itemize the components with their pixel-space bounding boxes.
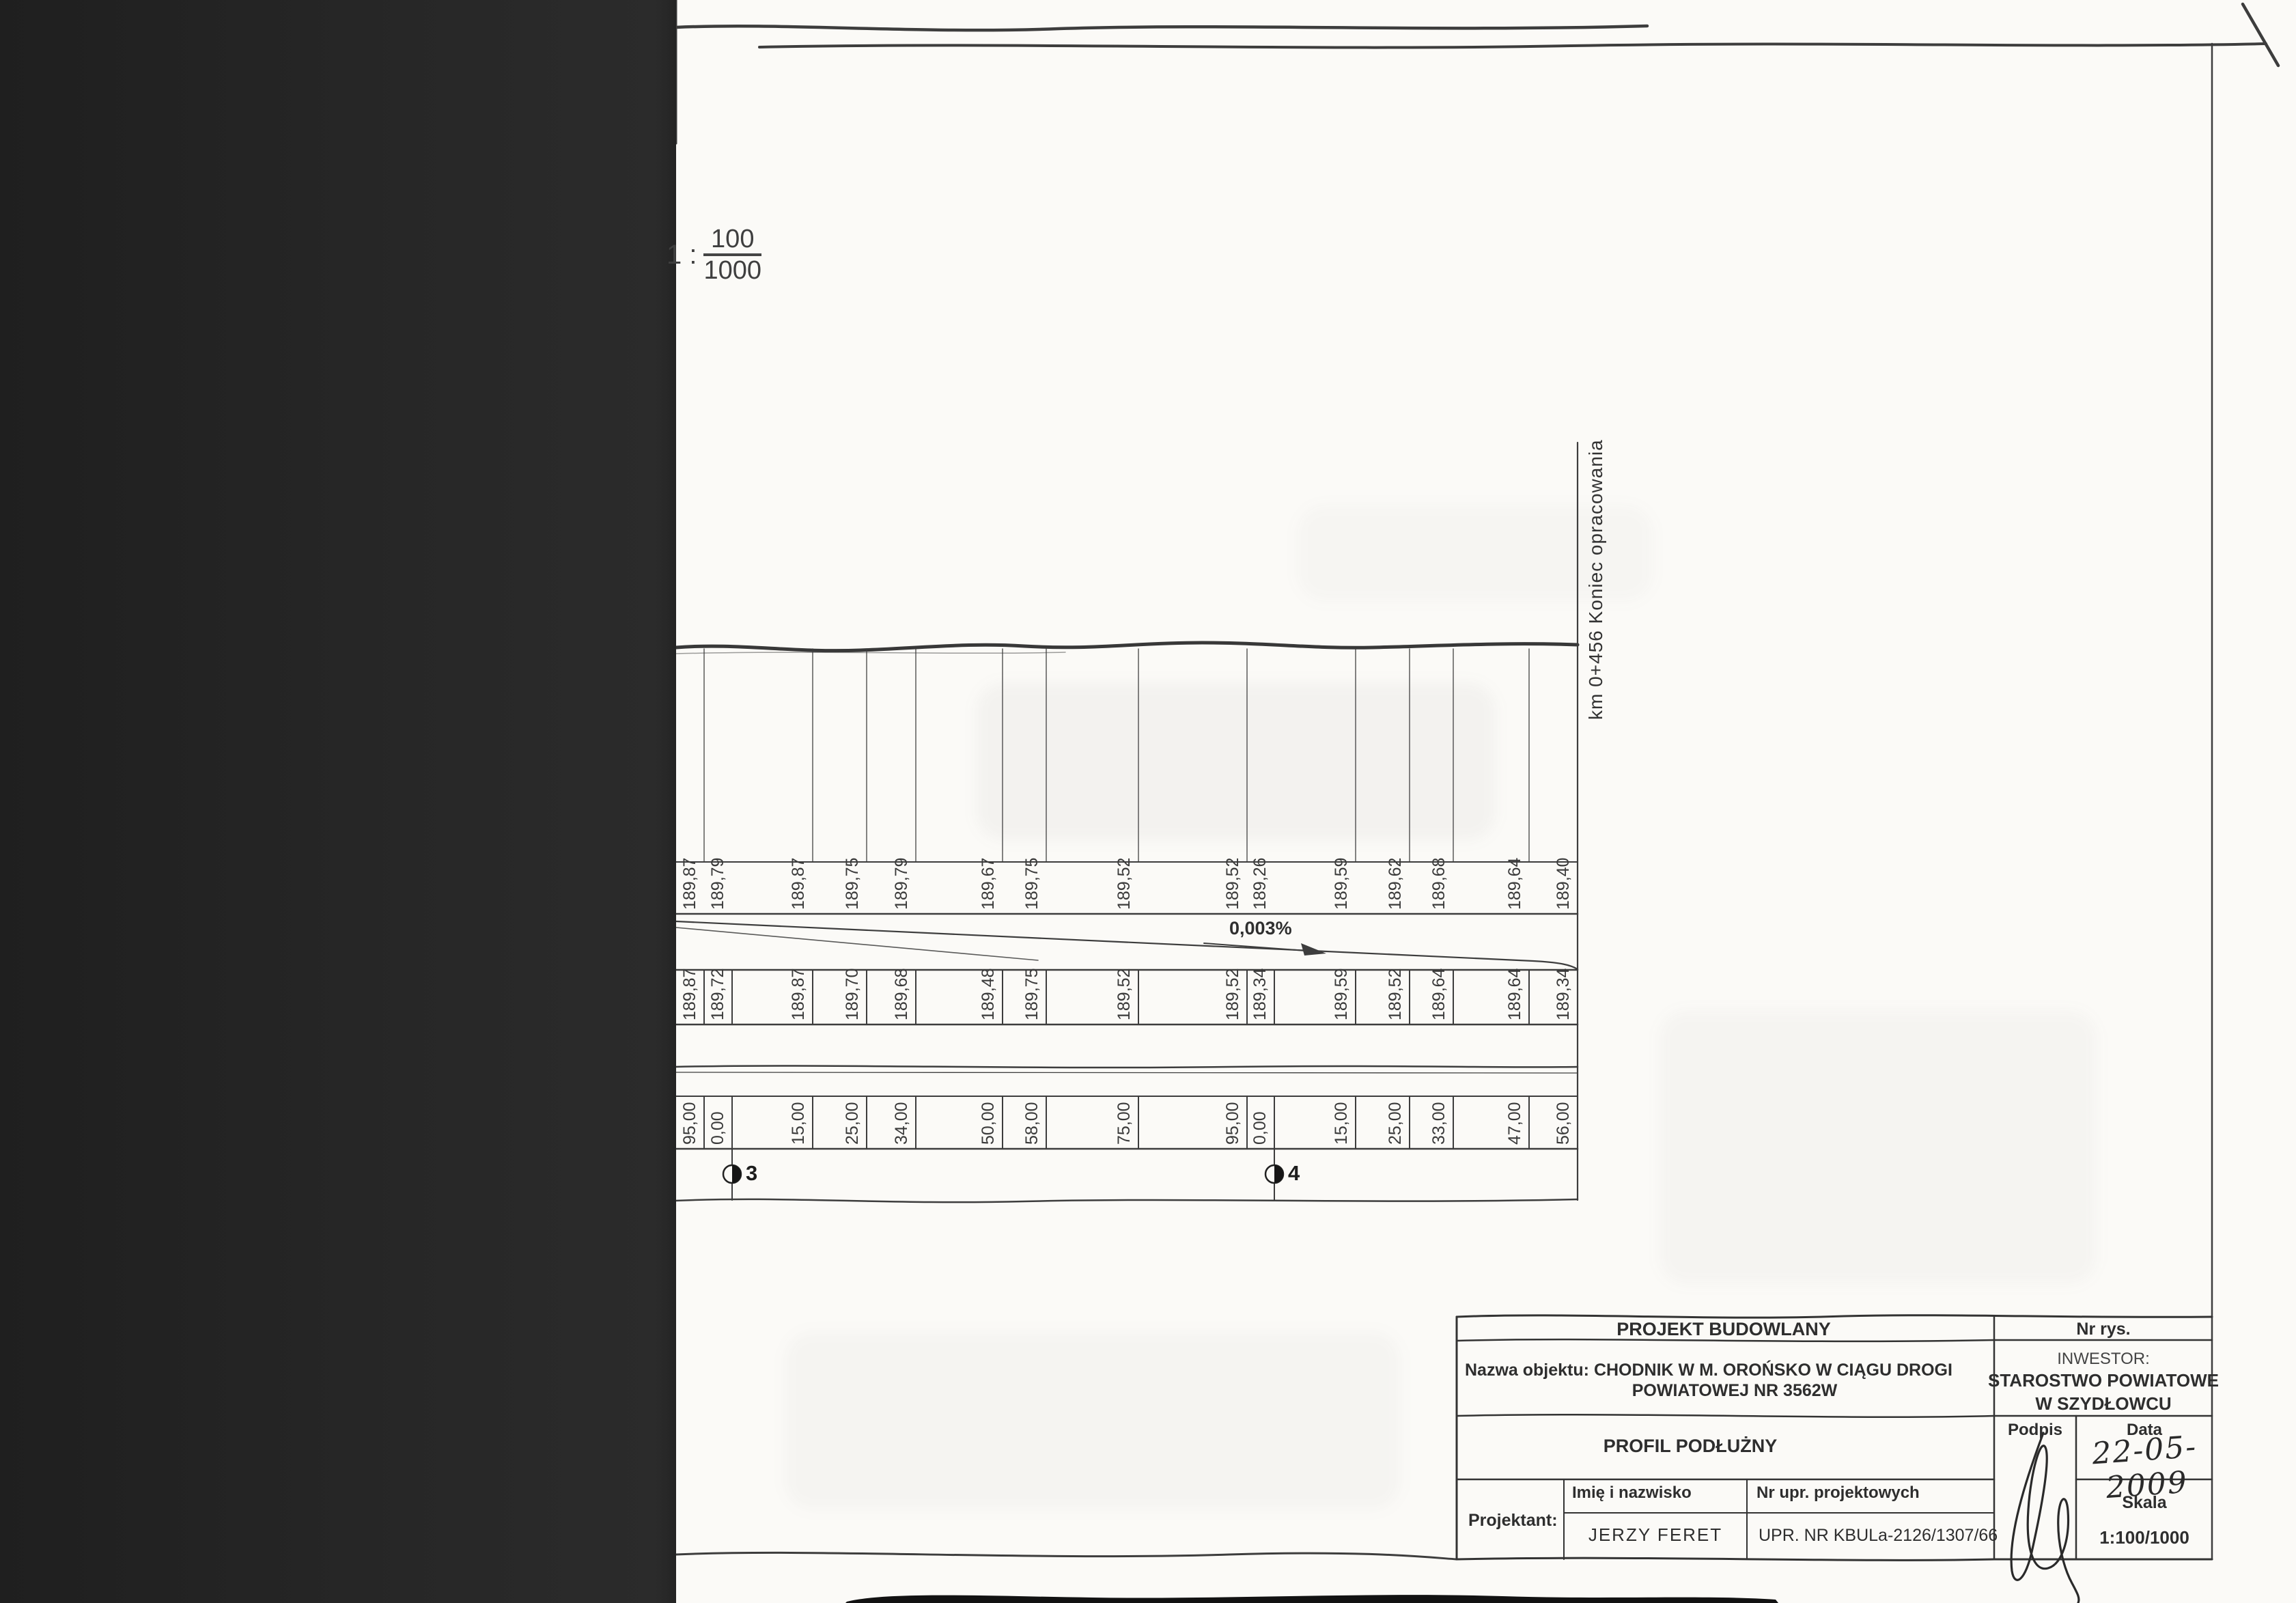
scale-denominator: 1000 xyxy=(703,256,761,284)
elevation-bottom-value: 189,52 xyxy=(1385,968,1405,1020)
distance-value: 58,00 xyxy=(1022,1102,1042,1145)
license-column-header: Nr upr. projektowych xyxy=(1756,1483,1920,1503)
designer-role-label: Projektant: xyxy=(1468,1511,1558,1531)
hectometer-marker-icon xyxy=(723,1165,1283,1183)
elevation-bottom-value: 189,52 xyxy=(1222,968,1243,1020)
scale-note: 1 : 100 1000 xyxy=(667,225,761,284)
designer-license-number: UPR. NR KBULa-2126/1307/66 xyxy=(1759,1526,1998,1546)
scanned-profile-drawing: 1 : 100 1000 0,003% km 0+456 Koniec opra… xyxy=(0,0,2296,1603)
distance-value: 95,00 xyxy=(1222,1102,1243,1145)
signature-column-label: Podpis xyxy=(2008,1421,2062,1440)
distance-value: 25,00 xyxy=(1385,1102,1405,1145)
designer-name: JERZY FERET xyxy=(1588,1524,1722,1546)
elevation-top-value: 189,67 xyxy=(978,858,998,910)
elevation-top-value: 189,75 xyxy=(842,858,863,910)
elevation-bottom-value: 189,64 xyxy=(1504,968,1525,1020)
elevation-bottom-value: 189,68 xyxy=(891,968,912,1020)
scale-column-label: Skala xyxy=(2122,1493,2166,1513)
elevation-top-value: 189,52 xyxy=(1114,858,1134,910)
scale-fraction: 100 1000 xyxy=(703,225,761,284)
elevation-bottom-value: 189,52 xyxy=(1114,968,1134,1020)
elevation-top-value: 189,75 xyxy=(1022,858,1042,910)
elevation-top-value: 189,87 xyxy=(788,858,809,910)
distance-value: 15,00 xyxy=(1331,1102,1352,1145)
elevation-top-value: 189,26 xyxy=(1250,858,1270,910)
elevation-bottom-value: 189,70 xyxy=(842,968,863,1020)
elevation-bottom-value: 189,87 xyxy=(680,968,700,1020)
distance-value: 75,00 xyxy=(1114,1102,1134,1145)
drawing-number-label: Nr rys. xyxy=(2076,1320,2130,1339)
elevation-bottom-value: 189,59 xyxy=(1331,968,1352,1020)
investor-label: INWESTOR: xyxy=(2057,1350,2150,1369)
distance-value: 25,00 xyxy=(842,1102,863,1145)
scale-prefix: 1 : xyxy=(667,240,697,270)
name-column-header: Imię i nazwisko xyxy=(1572,1483,1692,1503)
distance-value: 15,00 xyxy=(788,1102,809,1145)
elevation-bottom-value: 189,34 xyxy=(1250,968,1270,1020)
scan-black-edge xyxy=(0,0,676,1603)
object-name-line2: POWIATOWEJ NR 3562W xyxy=(1632,1381,1838,1401)
end-of-project-label: km 0+456 Koniec opracowania xyxy=(1586,439,1606,720)
distance-value: 47,00 xyxy=(1504,1102,1525,1145)
scale-numerator: 100 xyxy=(703,225,761,256)
distance-value: 0,00 xyxy=(1250,1111,1270,1145)
hectometer-label: 4 xyxy=(1288,1161,1300,1186)
elevation-bottom-value: 189,48 xyxy=(978,968,998,1020)
elevation-bottom-value: 189,64 xyxy=(1429,968,1449,1020)
elevation-top-value: 189,52 xyxy=(1222,858,1243,910)
elevation-top-value: 189,79 xyxy=(891,858,912,910)
elevation-bottom-value: 189,72 xyxy=(708,968,728,1020)
slope-annotation: 0,003% xyxy=(1229,918,1292,939)
elevation-bottom-value: 189,34 xyxy=(1553,968,1573,1020)
project-type-title: PROJEKT BUDOWLANY xyxy=(1616,1319,1831,1340)
elevation-bottom-value: 189,75 xyxy=(1022,968,1042,1020)
distance-value: 34,00 xyxy=(891,1102,912,1145)
distance-value: 56,00 xyxy=(1553,1102,1573,1145)
elevation-top-value: 189,62 xyxy=(1385,858,1405,910)
distance-value: 50,00 xyxy=(978,1102,998,1145)
distance-value: 95,00 xyxy=(680,1102,700,1145)
elevation-top-value: 189,64 xyxy=(1504,858,1525,910)
elevation-top-value: 189,87 xyxy=(680,858,700,910)
distance-value: 33,00 xyxy=(1429,1102,1449,1145)
hectometer-label: 3 xyxy=(746,1161,757,1186)
investor-name-line2: W SZYDŁOWCU xyxy=(2035,1393,2171,1414)
elevation-top-value: 189,40 xyxy=(1553,858,1573,910)
elevation-top-value: 189,59 xyxy=(1331,858,1352,910)
scale-value: 1:100/1000 xyxy=(2099,1527,2189,1548)
elevation-top-value: 189,79 xyxy=(708,858,728,910)
scan-smudge xyxy=(845,1595,1778,1603)
object-name-line1: Nazwa objektu: CHODNIK W M. OROŃSKO W CI… xyxy=(1465,1361,1952,1380)
signature-scribble xyxy=(2011,1433,2079,1603)
investor-name-line1: STAROSTWO POWIATOWE xyxy=(1988,1370,2219,1391)
distance-value: 0,00 xyxy=(708,1111,728,1145)
drawing-title: PROFIL PODŁUŻNY xyxy=(1604,1436,1778,1457)
elevation-bottom-value: 189,87 xyxy=(788,968,809,1020)
elevation-top-value: 189,68 xyxy=(1429,858,1449,910)
